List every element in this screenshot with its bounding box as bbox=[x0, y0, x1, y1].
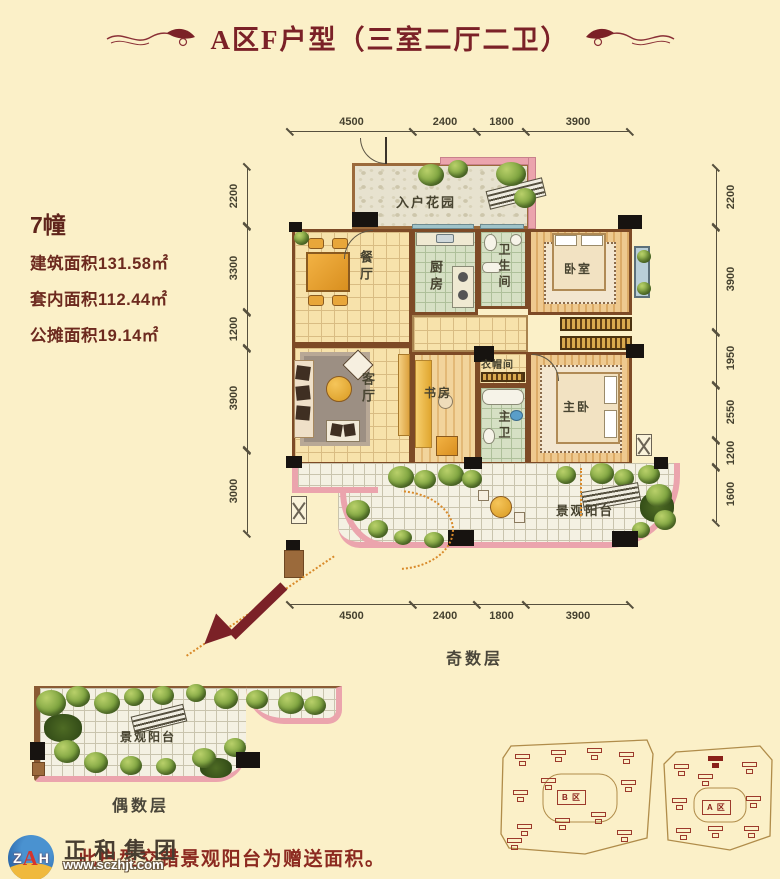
tree-icon bbox=[124, 688, 144, 706]
wardrobe bbox=[560, 317, 632, 331]
burner-icon bbox=[458, 290, 468, 300]
dimension-right-6: 1600 bbox=[716, 467, 717, 522]
armchair-cushion bbox=[343, 423, 356, 436]
tree-icon bbox=[448, 160, 468, 178]
dimension-top-2: 2400 bbox=[413, 131, 477, 132]
entry-door bbox=[385, 137, 387, 164]
arrow-icon bbox=[229, 582, 288, 639]
flourish-left-icon bbox=[105, 25, 197, 51]
building-icon bbox=[541, 778, 557, 791]
building-icon bbox=[515, 754, 531, 767]
tree-icon bbox=[66, 686, 90, 707]
balcony-label: 景观阳台 bbox=[556, 500, 614, 519]
shared-area: 公摊面积19.14㎡ bbox=[30, 322, 168, 346]
tree-icon bbox=[304, 696, 326, 715]
tree-icon bbox=[152, 686, 174, 705]
sink-icon bbox=[436, 234, 454, 243]
bathroom-label: 卫生间 bbox=[496, 243, 513, 291]
tree-icon bbox=[192, 748, 216, 768]
plant-icon bbox=[294, 231, 309, 245]
dimension-right-4: 2550 bbox=[716, 385, 717, 440]
toilet-icon bbox=[483, 428, 495, 444]
building-icon bbox=[672, 798, 688, 811]
dimension-top-3: 1800 bbox=[477, 131, 526, 132]
dimension-bottom-4: 3900 bbox=[526, 604, 630, 605]
building-icon bbox=[551, 750, 567, 763]
tree-icon bbox=[637, 282, 651, 295]
bedroom-label: 卧室 bbox=[564, 260, 592, 277]
tree-icon bbox=[654, 510, 676, 530]
dimension-left-2: 3300 bbox=[247, 226, 248, 312]
building-icon bbox=[698, 774, 714, 787]
building-icon bbox=[555, 818, 571, 831]
tree-icon bbox=[438, 464, 464, 486]
building-number: 7幢 bbox=[30, 206, 168, 240]
dimension-top-4: 3900 bbox=[526, 131, 630, 132]
building-icon bbox=[591, 812, 607, 825]
tree-icon bbox=[556, 466, 576, 484]
tree-icon bbox=[94, 692, 120, 714]
dimension-left-4: 3900 bbox=[247, 348, 248, 450]
building-icon bbox=[744, 826, 760, 839]
entry-garden-label: 入户花园 bbox=[396, 192, 456, 211]
patio-chair bbox=[514, 512, 525, 523]
floorplan-flyer: A区F户型（三室二厅二卫） 7幢 建筑面积131.58㎡ 套内面积112.44㎡… bbox=[0, 0, 780, 879]
odd-floor-label: 奇数层 bbox=[446, 645, 503, 669]
logo-circle-icon: Z A H bbox=[8, 835, 54, 879]
window bbox=[412, 224, 474, 229]
dimension-right-3: 1950 bbox=[716, 332, 717, 385]
dimension-top-1: 4500 bbox=[290, 131, 413, 132]
building-icon bbox=[708, 826, 724, 839]
building-icon bbox=[617, 830, 633, 843]
burner-icon bbox=[458, 272, 468, 282]
tree-icon bbox=[462, 470, 482, 488]
desk bbox=[415, 360, 432, 448]
even-floor-label: 偶数层 bbox=[112, 792, 169, 816]
entry-door-swing bbox=[360, 138, 386, 164]
website-url: www.sczhjt.com bbox=[63, 857, 164, 872]
tree-icon bbox=[368, 520, 388, 538]
built-area: 建筑面积131.58㎡ bbox=[30, 250, 168, 274]
tree-icon bbox=[186, 684, 206, 702]
dimension-left-3: 1200 bbox=[247, 312, 248, 348]
balcony-walkway bbox=[292, 463, 378, 493]
tree-icon bbox=[346, 500, 370, 521]
master-bedroom-label: 主卧 bbox=[563, 398, 591, 415]
building-icon bbox=[674, 764, 690, 777]
tree-icon bbox=[414, 470, 436, 489]
tree-icon bbox=[36, 690, 66, 716]
tree-icon bbox=[388, 466, 414, 488]
master-bath-label: 主卫 bbox=[496, 410, 513, 442]
cloakroom-closet bbox=[481, 372, 525, 382]
inner-area: 套内面积112.44㎡ bbox=[30, 286, 168, 310]
dimension-bottom-2: 2400 bbox=[413, 604, 477, 605]
patio-chair bbox=[478, 490, 489, 501]
tree-icon bbox=[637, 250, 651, 263]
dimension-left-1: 2200 bbox=[247, 167, 248, 226]
cabinet bbox=[436, 436, 458, 456]
building-icon bbox=[513, 790, 529, 803]
sofa-cushion bbox=[295, 365, 311, 381]
pillow bbox=[555, 235, 577, 246]
study-label: 书房 bbox=[424, 384, 452, 401]
flourish-right-icon bbox=[584, 25, 676, 51]
tree-icon bbox=[54, 740, 80, 763]
living-label: 客厅 bbox=[358, 372, 377, 406]
dimension-bottom-1: 4500 bbox=[290, 604, 413, 605]
bush-icon bbox=[44, 714, 82, 742]
building-icon bbox=[517, 824, 533, 837]
unit-info: 7幢 建筑面积131.58㎡ 套内面积112.44㎡ 公摊面积19.14㎡ bbox=[30, 206, 168, 358]
tree-icon bbox=[120, 756, 142, 775]
chair bbox=[332, 295, 348, 306]
coffee-table bbox=[326, 376, 352, 402]
pillow bbox=[604, 410, 617, 438]
building-icon bbox=[742, 762, 758, 775]
tree-icon bbox=[214, 688, 238, 709]
sofa-cushion bbox=[295, 405, 310, 420]
bathtub bbox=[482, 389, 524, 405]
tree-icon bbox=[418, 164, 444, 186]
building-icon bbox=[507, 838, 523, 851]
building-icon bbox=[621, 780, 637, 793]
window-icon bbox=[291, 496, 307, 524]
tree-icon bbox=[278, 692, 304, 714]
dimension-bottom-3: 1800 bbox=[477, 604, 526, 605]
zone-label-a: A 区 bbox=[702, 800, 731, 815]
dimension-left-5: 3000 bbox=[247, 450, 248, 533]
patio-table bbox=[490, 496, 512, 518]
zh-logo: Z A H 正和集团 www.sczhjt.com bbox=[8, 833, 268, 879]
cloakroom-label: 衣帽间 bbox=[481, 356, 514, 371]
building-icon bbox=[746, 796, 762, 809]
chair bbox=[308, 295, 324, 306]
logo-letter: H bbox=[39, 850, 49, 866]
tree-icon bbox=[84, 752, 108, 773]
zone-label-b: B 区 bbox=[557, 790, 586, 805]
armchair-cushion bbox=[330, 423, 343, 437]
dimension-right-5: 1200 bbox=[716, 440, 717, 467]
tree-icon bbox=[246, 690, 268, 709]
tree-icon bbox=[646, 484, 672, 507]
site-plan-a: A 区 bbox=[660, 744, 778, 856]
page-title: A区F户型（三室二厅二卫） bbox=[211, 18, 570, 57]
dimension-right-1: 2200 bbox=[716, 168, 717, 227]
building-icon bbox=[676, 828, 692, 841]
tree-icon bbox=[514, 188, 536, 208]
chair bbox=[308, 238, 324, 249]
building-icon bbox=[587, 748, 603, 761]
window-icon bbox=[636, 434, 652, 456]
tree-icon bbox=[590, 463, 614, 484]
building-icon bbox=[619, 752, 635, 765]
tree-icon bbox=[156, 758, 176, 775]
dimension-right-2: 3900 bbox=[716, 227, 717, 332]
logo-letter: A bbox=[23, 846, 38, 871]
header: A区F户型（三室二厅二卫） bbox=[0, 18, 780, 57]
hallway bbox=[412, 315, 528, 352]
gift-area-boundary bbox=[580, 468, 582, 516]
pillow bbox=[604, 376, 617, 404]
even-balcony-label: 景观阳台 bbox=[120, 728, 176, 745]
pillow bbox=[581, 235, 603, 246]
sofa-cushion bbox=[295, 385, 310, 400]
arrow-icon bbox=[194, 614, 235, 655]
logo-letter: Z bbox=[13, 850, 22, 866]
wardrobe bbox=[560, 336, 632, 350]
window bbox=[480, 224, 524, 229]
tree-icon bbox=[496, 162, 526, 186]
building-icon-highlighted bbox=[708, 756, 724, 769]
tv-cabinet bbox=[398, 354, 410, 436]
kitchen-label: 厨房 bbox=[426, 260, 445, 294]
site-plan-b: B 区 bbox=[497, 738, 657, 860]
